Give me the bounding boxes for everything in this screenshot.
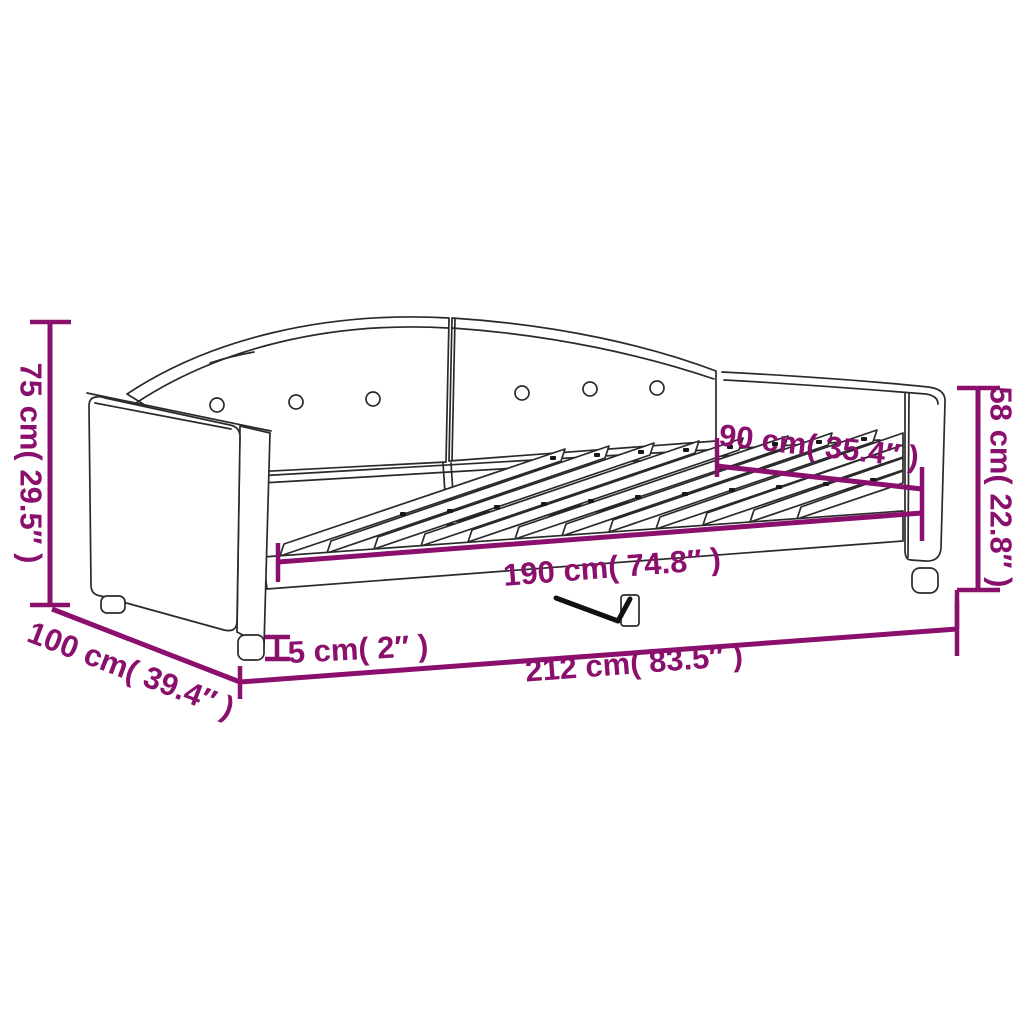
dimension-depth: 100 cm( 39.4″ ) [23,609,240,725]
center-support-leg [556,595,639,626]
daybed-dimension-diagram: 75 cm( 29.5″ ) 100 cm( 39.4″ ) 212 cm( 8… [0,0,1024,1024]
dimension-height-left: 75 cm( 29.5″ ) [14,322,72,605]
dimension-label-leg-height: 5 cm( 2″ ) [287,628,429,670]
dimension-label-length-overall: 212 cm( 83.5″ ) [524,637,744,688]
dimension-label-height-left: 75 cm( 29.5″ ) [14,363,49,564]
dimension-label-height-right: 58 cm( 22.8″ ) [984,387,1019,588]
dimension-height-right: 58 cm( 22.8″ ) [957,387,1019,629]
daybed-line-art [87,317,945,660]
dimension-leg-height: 5 cm( 2″ ) [265,628,429,670]
diagram-canvas: 75 cm( 29.5″ ) 100 cm( 39.4″ ) 212 cm( 8… [0,0,1024,1024]
